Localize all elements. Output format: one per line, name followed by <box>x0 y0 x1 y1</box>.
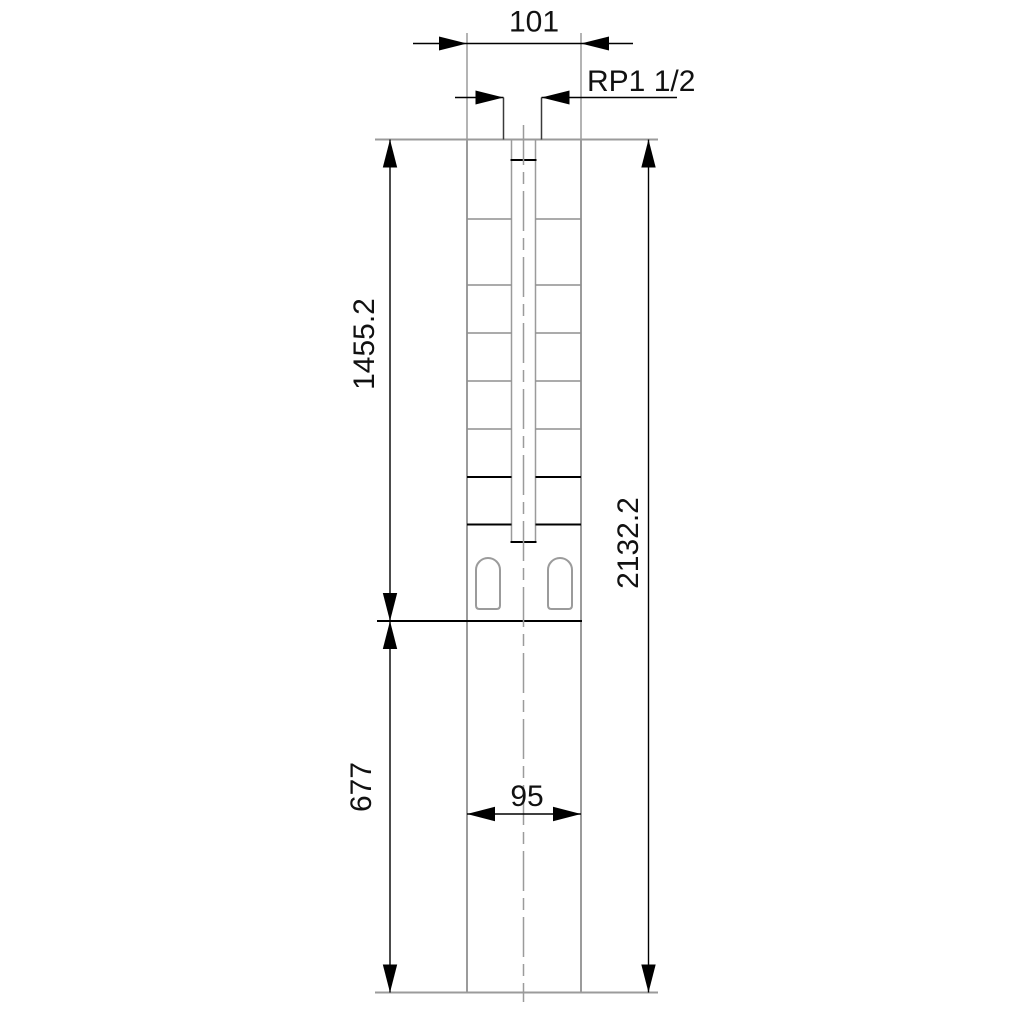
dim-label-motor-width: 95 <box>510 780 543 813</box>
motor-length-dimension: 677 <box>345 621 397 993</box>
arrowhead-right-icon <box>476 91 504 105</box>
arrowhead-down-icon <box>641 965 655 993</box>
cable-slot-right <box>548 558 572 609</box>
total-length-dimension: 2132.2 <box>612 140 656 993</box>
pump-length-dimension: 1455.2 <box>348 140 397 622</box>
dim-label-motor-length: 677 <box>345 762 378 812</box>
arrowhead-left-icon <box>542 91 570 105</box>
arrowhead-right-icon <box>439 37 467 51</box>
arrowhead-up-icon <box>641 140 655 168</box>
dim-label-thread: RP1 1/2 <box>587 65 695 98</box>
dim-label-total-length: 2132.2 <box>612 497 645 589</box>
pump-dimension-drawing: 101 RP1 1/2 1455.2 677 2132.2 95 <box>0 0 1024 1024</box>
arrowhead-up-icon <box>383 621 397 649</box>
cable-slot-left <box>476 558 500 609</box>
thread-dimension: RP1 1/2 <box>455 65 695 105</box>
dim-label-pump-length: 1455.2 <box>348 298 381 390</box>
discharge-port <box>504 98 542 140</box>
arrowhead-right-icon <box>553 807 581 821</box>
top-width-dimension: 101 <box>413 6 633 51</box>
dim-label-width-top: 101 <box>509 6 559 39</box>
arrowhead-up-icon <box>383 140 397 168</box>
arrowhead-down-icon <box>383 593 397 621</box>
arrowhead-left-icon <box>467 807 495 821</box>
arrowhead-left-icon <box>581 37 609 51</box>
drawing-canvas: 101 RP1 1/2 1455.2 677 2132.2 95 <box>0 0 1024 1024</box>
arrowhead-down-icon <box>383 965 397 993</box>
top-extension-lines <box>467 33 581 140</box>
